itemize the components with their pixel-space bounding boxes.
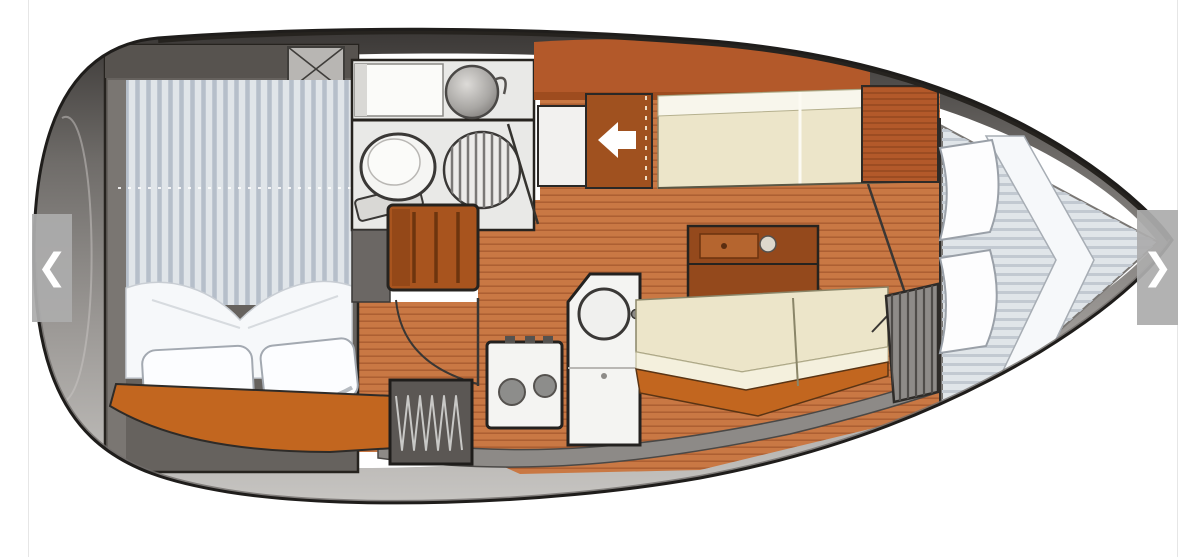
v-berth-pillow-bottom [940, 250, 997, 353]
carousel-next-button[interactable]: ❯ [1137, 210, 1178, 325]
boat-floorplan-image [0, 0, 1200, 557]
table-knob [760, 236, 776, 252]
galley-sink-unit [568, 274, 641, 445]
v-berth-pillow-top [940, 140, 999, 240]
companionway-arrow-panel [586, 94, 652, 188]
carousel-prev-button[interactable]: ❮ [32, 214, 72, 322]
chevron-left-icon: ❮ [37, 250, 67, 286]
head-lower-wall [352, 230, 390, 302]
galley-stove [487, 336, 562, 428]
stove-burner-left [499, 379, 525, 405]
port-locker [538, 106, 586, 186]
stove-burner-right [534, 375, 556, 397]
hanging-locker [390, 380, 472, 464]
aft-berth [118, 80, 359, 414]
companionway-steps [388, 205, 478, 290]
image-carousel-viewport: ❮ ❯ [0, 0, 1200, 557]
chevron-right-icon: ❯ [1142, 250, 1172, 286]
